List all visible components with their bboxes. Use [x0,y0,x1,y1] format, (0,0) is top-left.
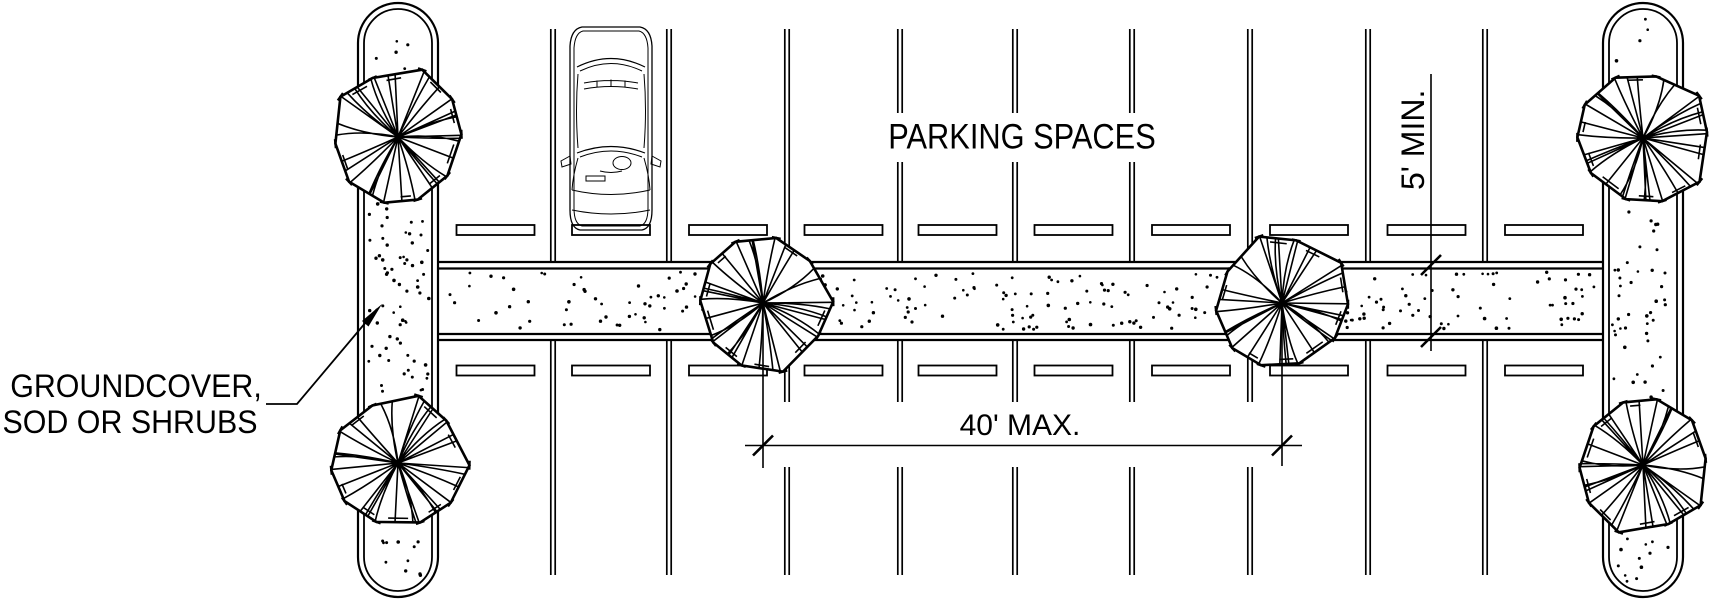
svg-text:5' MIN.: 5' MIN. [1395,90,1431,190]
svg-text:GROUNDCOVER,: GROUNDCOVER, [10,368,262,404]
svg-text:40' MAX.: 40' MAX. [960,409,1081,442]
svg-text:PARKING SPACES: PARKING SPACES [888,117,1155,156]
svg-text:SOD OR SHRUBS: SOD OR SHRUBS [2,404,257,440]
